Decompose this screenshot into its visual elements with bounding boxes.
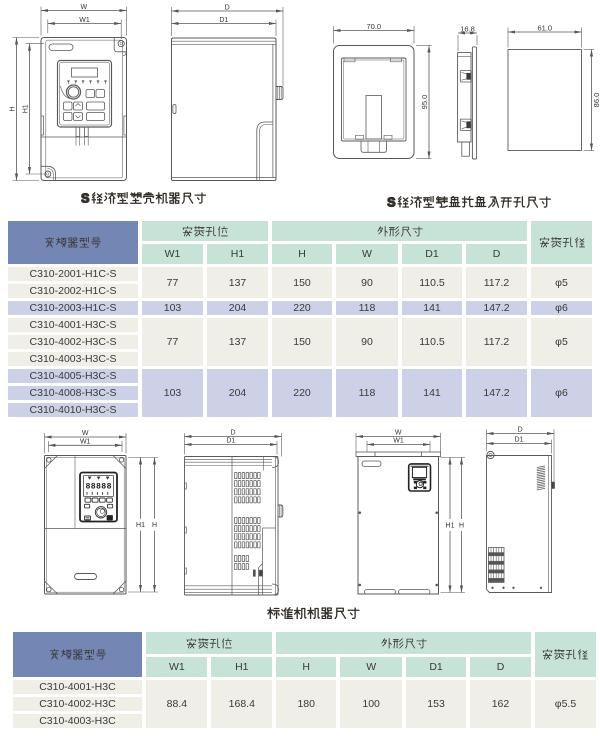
svg-text:W1: W1 — [393, 438, 404, 445]
svg-text:H: H — [10, 106, 17, 111]
svg-text:W1: W1 — [80, 439, 91, 446]
svg-text:W: W — [80, 4, 87, 11]
svg-text:D1: D1 — [219, 17, 228, 24]
svg-text:61.0: 61.0 — [537, 24, 552, 33]
svg-text:W1: W1 — [79, 17, 90, 24]
svg-text:70.0: 70.0 — [366, 22, 381, 31]
svg-text:W: W — [82, 430, 89, 437]
svg-text:S: S — [81, 192, 89, 204]
svg-text:H: H — [459, 523, 464, 530]
svg-text:H: H — [152, 522, 157, 529]
svg-text:H1: H1 — [23, 104, 30, 113]
svg-text:D: D — [518, 427, 523, 434]
svg-text:D: D — [230, 430, 235, 437]
svg-text:H1: H1 — [136, 522, 145, 529]
svg-text:95.0: 95.0 — [420, 95, 429, 110]
svg-text:D1: D1 — [515, 437, 524, 444]
svg-text:H1: H1 — [446, 523, 455, 530]
svg-text:S: S — [387, 196, 395, 208]
svg-text:86.0: 86.0 — [592, 93, 600, 108]
svg-text:16.8: 16.8 — [460, 25, 475, 34]
svg-text:D: D — [225, 5, 230, 12]
svg-text:D1: D1 — [226, 438, 235, 445]
svg-text:88888: 88888 — [86, 483, 112, 492]
svg-text:W: W — [395, 430, 402, 437]
